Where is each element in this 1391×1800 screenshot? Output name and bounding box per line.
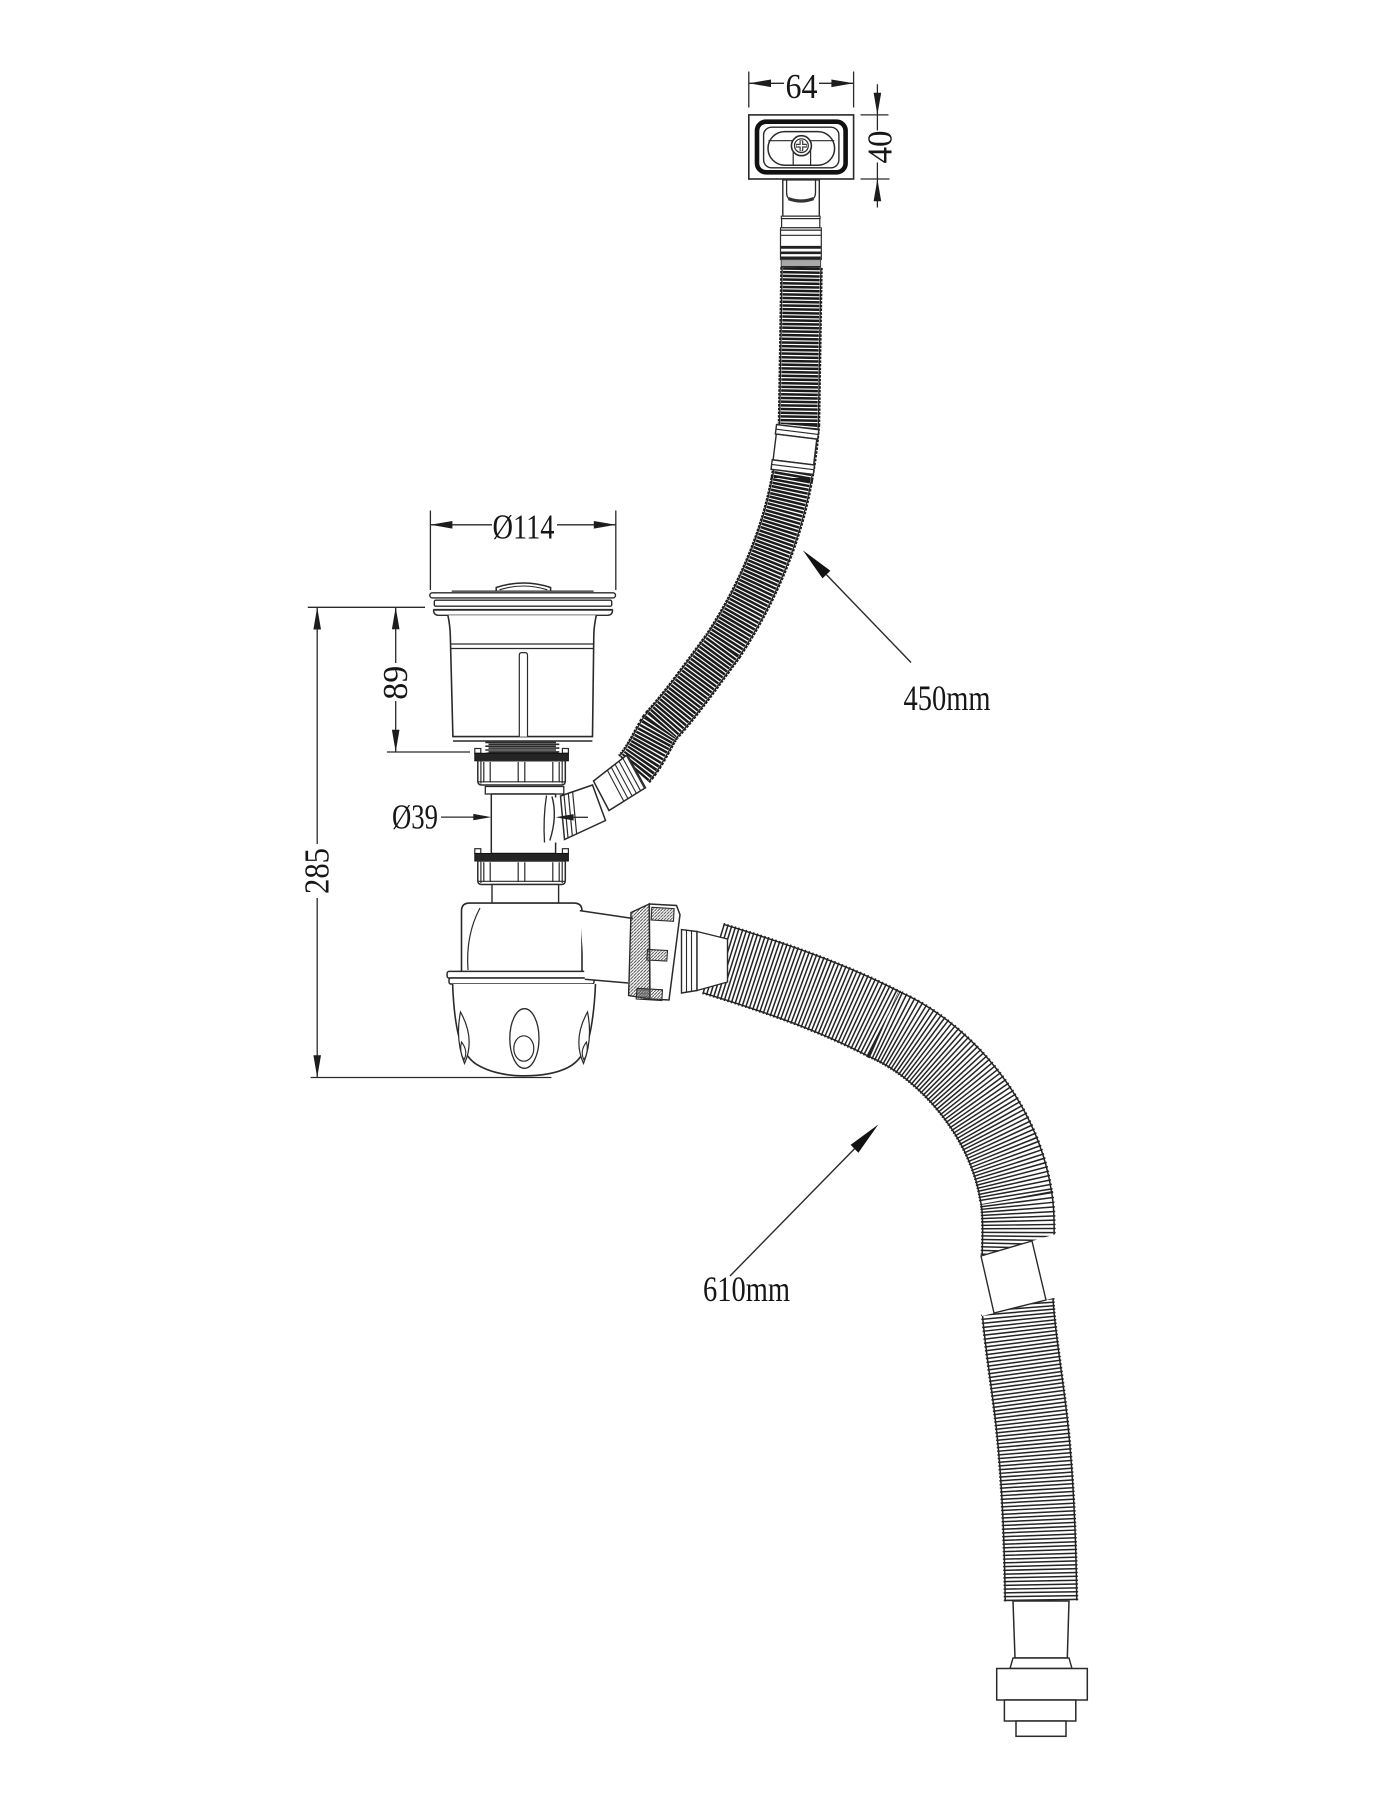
svg-text:40: 40 bbox=[861, 131, 900, 164]
svg-text:Ø114: Ø114 bbox=[493, 508, 555, 547]
svg-text:Ø39: Ø39 bbox=[392, 797, 438, 836]
svg-text:450mm: 450mm bbox=[904, 678, 991, 718]
svg-text:64: 64 bbox=[786, 67, 818, 106]
svg-text:285: 285 bbox=[298, 848, 337, 894]
svg-text:89: 89 bbox=[376, 666, 415, 700]
svg-text:610mm: 610mm bbox=[703, 1269, 790, 1309]
